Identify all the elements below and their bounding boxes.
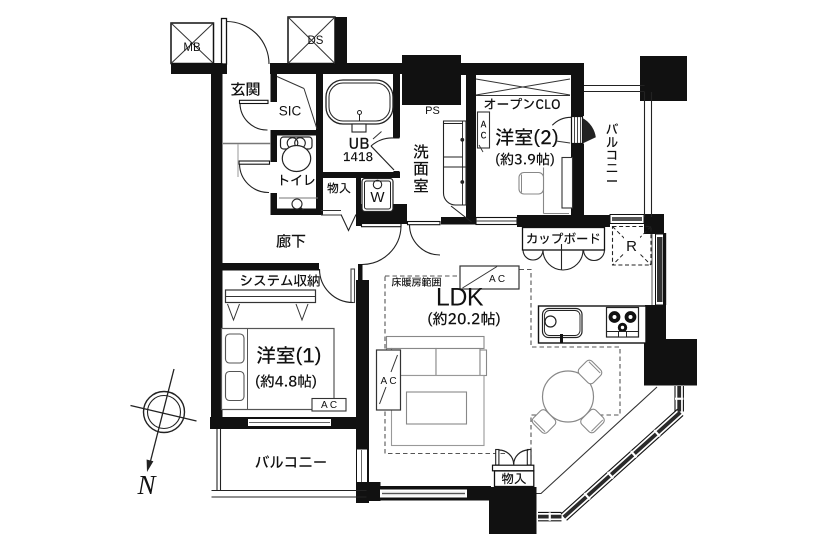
- svg-text:R: R: [626, 238, 637, 255]
- svg-text:PS: PS: [425, 105, 440, 117]
- svg-text:A C: A C: [380, 376, 396, 387]
- svg-text:A C: A C: [321, 400, 337, 411]
- svg-text:A C: A C: [489, 274, 505, 285]
- svg-text:N: N: [136, 470, 157, 500]
- svg-text:LDK: LDK: [436, 284, 484, 312]
- svg-text:W: W: [370, 189, 385, 206]
- svg-text:DS: DS: [308, 35, 324, 47]
- svg-text:MB: MB: [183, 42, 201, 54]
- svg-text:SIC: SIC: [279, 104, 302, 119]
